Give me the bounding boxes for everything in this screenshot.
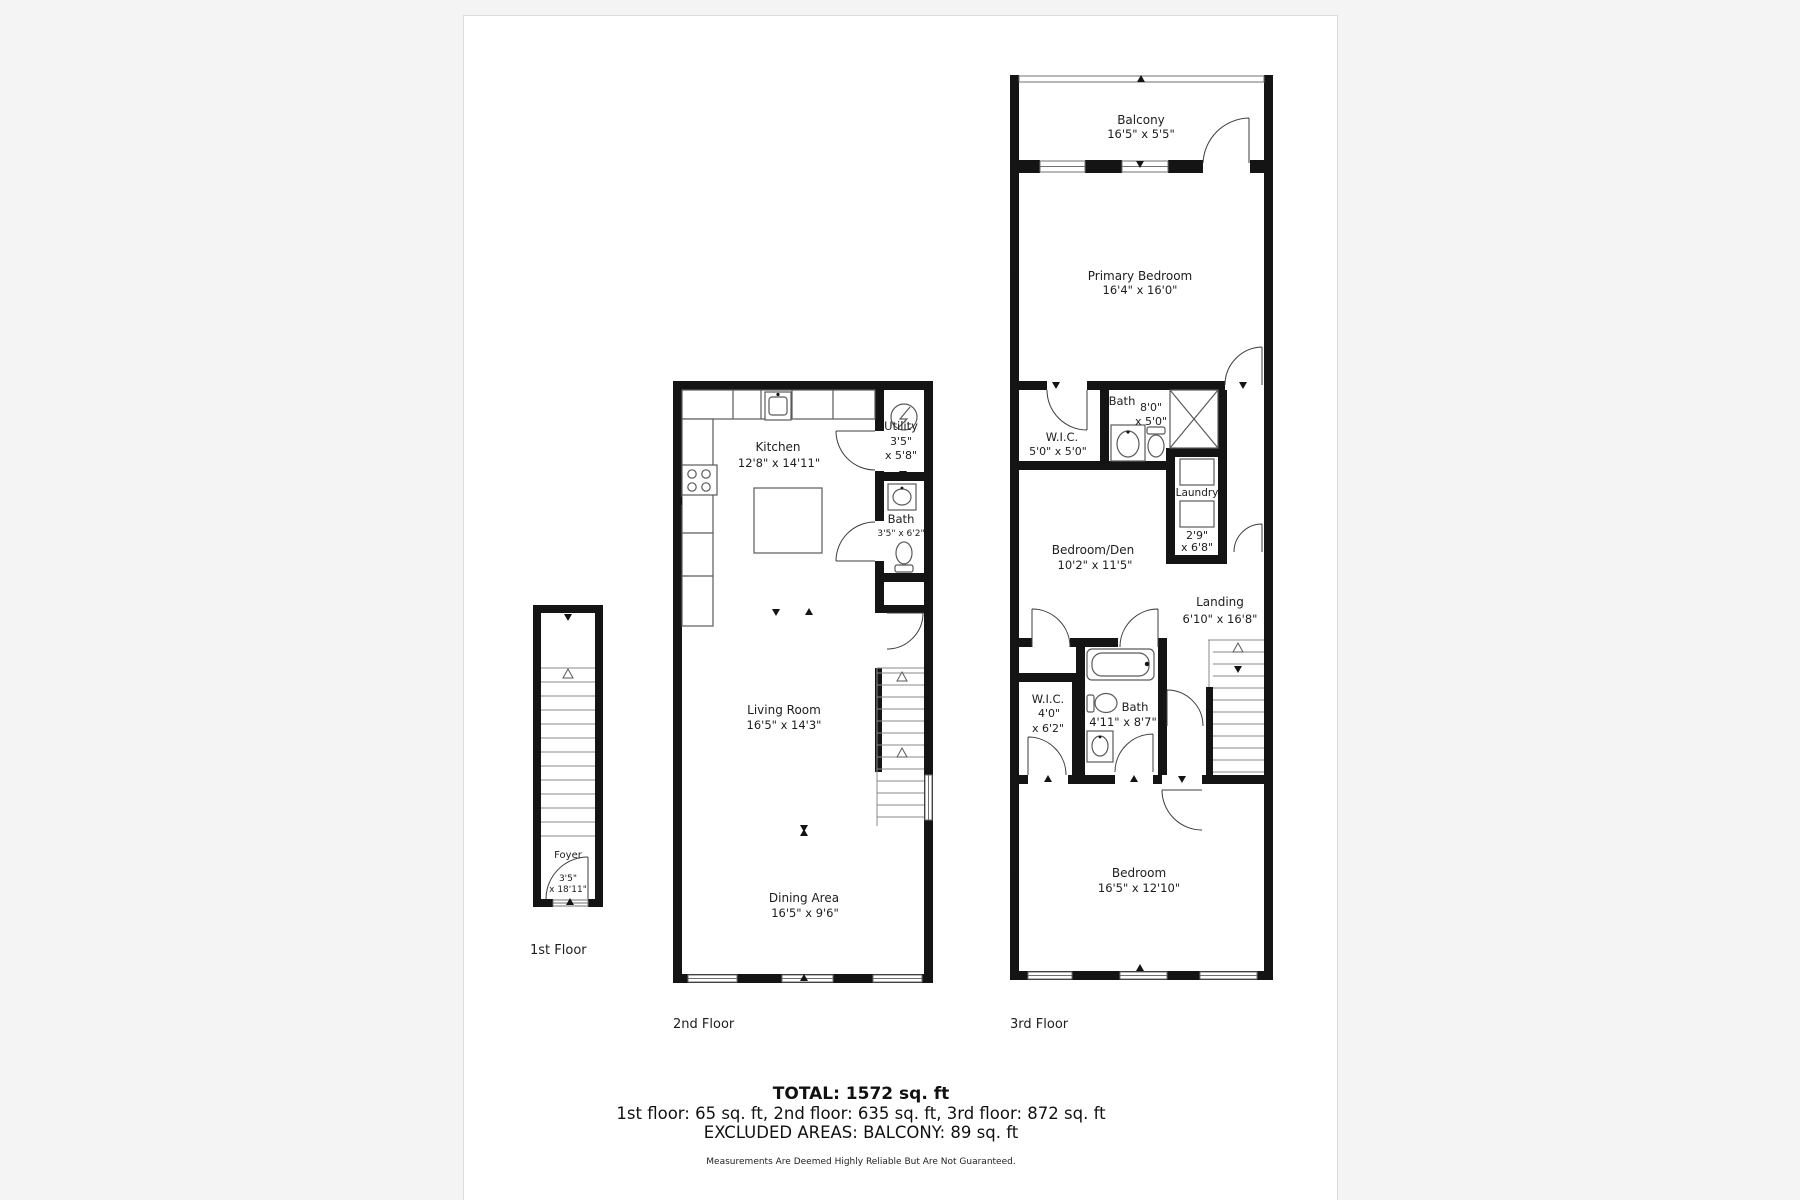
windows bbox=[688, 775, 932, 982]
summary-block: TOTAL: 1572 sq. ft 1st floor: 65 sq. ft,… bbox=[464, 1086, 1258, 1167]
bath2-dims: 4'11" x 8'7" bbox=[1089, 715, 1157, 729]
room-wic1: W.I.C. 5'0" x 5'0" bbox=[1029, 430, 1087, 458]
kitchen-label: Kitchen bbox=[755, 440, 800, 454]
room-wic2: W.I.C. 4'0" x 6'2" bbox=[1032, 692, 1064, 735]
utility-dim1: 3'5" bbox=[890, 435, 912, 448]
toilet-icon bbox=[895, 542, 913, 572]
excluded-areas: EXCLUDED AREAS: BALCONY: 89 sq. ft bbox=[464, 1125, 1258, 1141]
disclaimer: Measurements Are Deemed Highly Reliable … bbox=[464, 1157, 1258, 1167]
second-floor-label: 2nd Floor bbox=[673, 1017, 734, 1032]
bath1-dim1: 8'0" bbox=[1140, 401, 1162, 414]
balcony-dims: 16'5" x 5'5" bbox=[1107, 127, 1175, 141]
floorplan-page: Foyer 3'5" x 18'11" bbox=[0, 0, 1800, 1200]
kitchen-sink-icon bbox=[765, 392, 791, 420]
third-floor-walls bbox=[1010, 75, 1273, 980]
bath2-sink-icon bbox=[1087, 731, 1113, 762]
den-dims: 10'2" x 11'5" bbox=[1058, 558, 1133, 572]
bath-2f-dims: 3'5" x 6'2" bbox=[877, 529, 924, 539]
third-floor-plan: Balcony 16'5" x 5'5" Primary Bedroom 16'… bbox=[1010, 75, 1273, 983]
bath-sink-icon bbox=[888, 484, 916, 510]
bathtub-icon bbox=[1087, 649, 1154, 680]
room-bath1: Bath 8'0" x 5'0" bbox=[1109, 394, 1167, 428]
total-area: TOTAL: 1572 sq. ft bbox=[464, 1086, 1258, 1103]
bath-2f-label: Bath bbox=[888, 512, 915, 526]
stair-direction-icon bbox=[563, 669, 573, 678]
first-floor-label: 1st Floor bbox=[530, 943, 587, 958]
dryer-icon bbox=[1180, 501, 1214, 527]
washer-icon bbox=[1180, 459, 1214, 485]
living-label: Living Room bbox=[747, 703, 821, 717]
living-dims: 16'5" x 14'3" bbox=[747, 718, 822, 732]
landing-label: Landing bbox=[1196, 595, 1244, 609]
den-label: Bedroom/Den bbox=[1052, 543, 1135, 557]
laundry-dim2: x 6'8" bbox=[1181, 541, 1213, 554]
bath2-toilet-icon bbox=[1087, 694, 1117, 713]
windows bbox=[1028, 972, 1257, 979]
balcony-label: Balcony bbox=[1117, 113, 1165, 127]
bath1-toilet-icon bbox=[1147, 427, 1165, 457]
room-balcony: Balcony 16'5" x 5'5" bbox=[1107, 113, 1175, 141]
foyer-label: Foyer bbox=[554, 850, 583, 861]
bedroom-label: Bedroom bbox=[1112, 866, 1166, 880]
dining-label: Dining Area bbox=[769, 891, 839, 905]
primary-dims: 16'4" x 16'0" bbox=[1103, 283, 1178, 297]
wic2-dim1: 4'0" bbox=[1038, 707, 1060, 720]
room-living: Living Room 16'5" x 14'3" bbox=[747, 703, 822, 732]
bedroom-dims: 16'5" x 12'10" bbox=[1098, 881, 1180, 895]
bath1-label: Bath bbox=[1109, 394, 1136, 408]
room-utility: Utility 3'5" x 5'8" bbox=[884, 419, 918, 462]
wic1-label: W.I.C. bbox=[1046, 430, 1078, 444]
stair-direction-icon bbox=[897, 748, 907, 757]
kitchen-island bbox=[754, 488, 822, 553]
first-floor-plan: Foyer 3'5" x 18'11" bbox=[533, 605, 603, 907]
third-floor-stairs bbox=[1206, 640, 1264, 775]
stove-icon bbox=[682, 465, 717, 495]
room-bedroom-den: Bedroom/Den 10'2" x 11'5" bbox=[1052, 543, 1135, 572]
utility-dim2: x 5'8" bbox=[885, 449, 917, 462]
wall-markers bbox=[1012, 75, 1271, 971]
kitchen-dims: 12'8" x 14'11" bbox=[738, 456, 820, 470]
wall-markers bbox=[534, 614, 602, 905]
second-floor-doors bbox=[836, 431, 923, 649]
utility-label: Utility bbox=[884, 419, 918, 433]
first-floor-stairs bbox=[541, 668, 595, 836]
shower-icon bbox=[1170, 390, 1218, 448]
bath1-dim2: x 5'0" bbox=[1135, 415, 1167, 428]
room-bath-2f: Bath 3'5" x 6'2" bbox=[877, 512, 924, 539]
room-primary-bedroom: Primary Bedroom 16'4" x 16'0" bbox=[1088, 269, 1192, 297]
landing-dims: 6'10" x 16'8" bbox=[1183, 612, 1258, 626]
bath1-sink-icon bbox=[1111, 425, 1145, 461]
third-floor-label: 3rd Floor bbox=[1010, 1017, 1068, 1032]
room-bedroom: Bedroom 16'5" x 12'10" bbox=[1098, 866, 1180, 895]
foyer-dim1: 3'5" bbox=[559, 874, 577, 884]
room-dining: Dining Area 16'5" x 9'6" bbox=[769, 891, 839, 920]
room-landing: Landing 6'10" x 16'8" bbox=[1183, 595, 1258, 626]
wic2-dim2: x 6'2" bbox=[1032, 722, 1064, 735]
room-kitchen: Kitchen 12'8" x 14'11" bbox=[738, 440, 820, 470]
foyer-dim2: x 18'11" bbox=[549, 885, 587, 895]
bath2-label: Bath bbox=[1122, 700, 1149, 714]
stair-direction-icon bbox=[1233, 643, 1243, 652]
primary-label: Primary Bedroom bbox=[1088, 269, 1192, 283]
second-floor-plan: Kitchen 12'8" x 14'11" Utility 3'5" x 5'… bbox=[673, 381, 933, 983]
wic1-dims: 5'0" x 5'0" bbox=[1029, 445, 1087, 458]
wic2-label: W.I.C. bbox=[1032, 692, 1064, 706]
floorplan-panel: Foyer 3'5" x 18'11" bbox=[463, 15, 1338, 1200]
dining-dims: 16'5" x 9'6" bbox=[771, 906, 839, 920]
laundry-label: Laundry bbox=[1176, 487, 1219, 499]
second-floor-stairs bbox=[877, 668, 924, 826]
floor-areas: 1st floor: 65 sq. ft, 2nd floor: 635 sq.… bbox=[464, 1106, 1258, 1122]
